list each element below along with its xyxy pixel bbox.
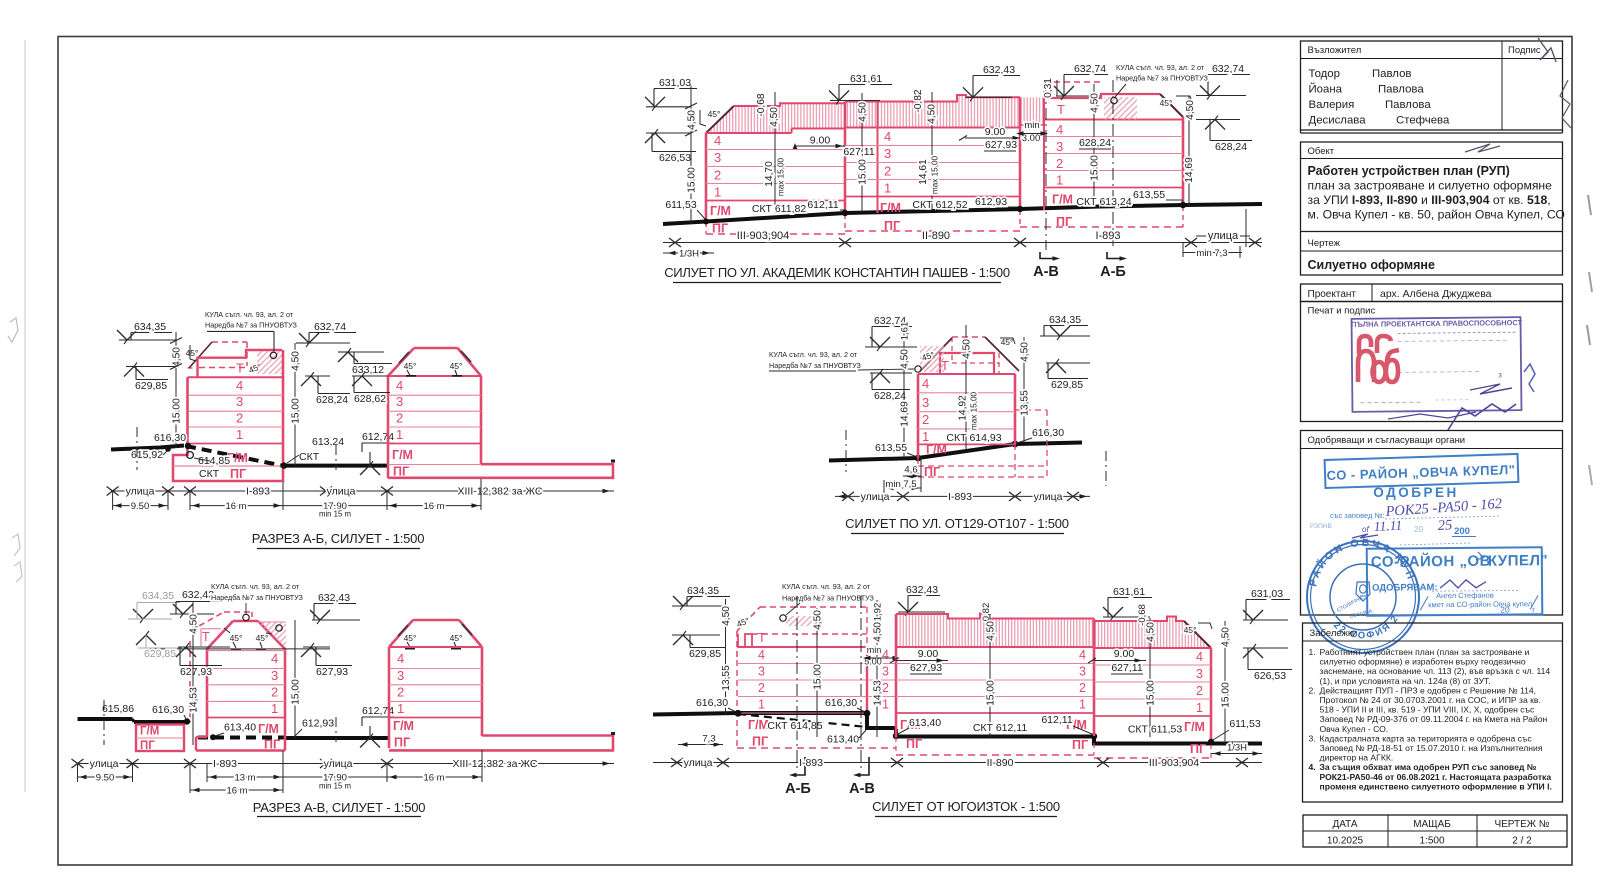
svg-text:4,50: 4,50 <box>687 110 698 130</box>
svg-text:45°: 45° <box>256 633 269 643</box>
svg-text:min 15 m: min 15 m <box>319 782 351 791</box>
svg-text:Работен устройствен план (РУП): Работен устройствен план (РУП) <box>1308 164 1510 178</box>
svg-text:СИЛУЕТ ПО УЛ. ОТ129-ОТ107 - 1:: СИЛУЕТ ПО УЛ. ОТ129-ОТ107 - 1:500 <box>845 516 1069 531</box>
svg-text:Т: Т <box>1057 102 1065 117</box>
svg-text:3.: 3. <box>1309 733 1316 743</box>
svg-text:Ангел Стефанов: Ангел Стефанов <box>1436 591 1494 601</box>
svg-text:заснемане, на основание чл. 11: заснемане, на основание чл. 113 (2), във… <box>1320 666 1551 676</box>
svg-text:3: 3 <box>271 668 278 683</box>
svg-text:СКТ: СКТ <box>299 451 320 463</box>
svg-text:улица: улица <box>324 758 353 770</box>
svg-text:м. Овча Купел - кв. 50, район: м. Овча Купел - кв. 50, район Овча Купел… <box>1308 208 1565 222</box>
svg-text:613,55: 613,55 <box>875 442 907 454</box>
svg-text:ПГ: ПГ <box>884 219 900 233</box>
svg-text:45°: 45° <box>450 633 463 643</box>
svg-text:III-903,904: III-903,904 <box>1149 757 1199 769</box>
svg-text:2: 2 <box>396 411 403 426</box>
svg-text:ПГ: ПГ <box>393 465 409 479</box>
svg-text:628,24: 628,24 <box>1215 141 1247 153</box>
svg-text:14,69: 14,69 <box>900 401 911 427</box>
svg-text:Работният устройствен план (пл: Работният устройствен план (план за заст… <box>1320 647 1530 657</box>
svg-text:Г/М: Г/М <box>258 722 279 736</box>
svg-text:XIII-12,382 за ЖС: XIII-12,382 за ЖС <box>457 486 542 498</box>
svg-text:518 - УПИ II и III, кв. 519 -: 518 - УПИ II и III, кв. 519 - УПИ VIII, … <box>1320 705 1535 715</box>
svg-text:max 15,00: max 15,00 <box>931 155 940 194</box>
svg-text:1/3Н: 1/3Н <box>679 249 699 260</box>
svg-text:Протокол № 24 от 30.0703.2001: Протокол № 24 от 30.0703.2001 г. на СОС,… <box>1320 695 1541 705</box>
svg-text:силуетно оформяне) е изработен: силуетно оформяне) е изработен върху гео… <box>1320 657 1526 667</box>
svg-text:1/3Н: 1/3Н <box>1227 743 1247 754</box>
svg-text:4,50: 4,50 <box>927 104 938 124</box>
svg-text:Подпис: Подпис <box>1508 45 1541 56</box>
svg-text:627,93: 627,93 <box>180 666 212 678</box>
svg-text:Т: Т <box>236 361 244 376</box>
svg-text:1: 1 <box>1056 173 1063 188</box>
svg-text:45°: 45° <box>708 109 721 119</box>
svg-text:4: 4 <box>758 648 765 662</box>
svg-text:16 m: 16 m <box>226 786 247 797</box>
svg-text:3: 3 <box>882 665 889 679</box>
svg-text:14,70: 14,70 <box>764 161 775 187</box>
svg-text:СИЛУЕТ ОТ ЮГОИЗТОК - 1:500: СИЛУЕТ ОТ ЮГОИЗТОК - 1:500 <box>872 799 1060 814</box>
svg-text:Г/М: Г/М <box>393 719 414 733</box>
svg-text:1: 1 <box>397 701 404 716</box>
svg-text:4,50: 4,50 <box>291 351 302 371</box>
svg-text:ПГ: ПГ <box>230 467 246 481</box>
svg-text:I-893: I-893 <box>1095 230 1120 242</box>
svg-text:Кадастралната карта за територ: Кадастралната карта за територията е одо… <box>1320 733 1533 743</box>
svg-text:13,55: 13,55 <box>1020 390 1031 416</box>
svg-text:627,93: 627,93 <box>985 139 1017 151</box>
svg-text:улица: улица <box>126 486 155 498</box>
svg-text:616,30: 616,30 <box>1032 427 1064 439</box>
svg-text:4: 4 <box>714 133 721 148</box>
svg-text:9.50: 9.50 <box>96 773 115 784</box>
svg-text:ПГ: ПГ <box>1190 742 1206 756</box>
svg-text:улица: улица <box>327 486 356 498</box>
svg-text:I-893: I-893 <box>948 491 972 503</box>
svg-text:9.00: 9.00 <box>918 648 939 660</box>
svg-text:-0,68: -0,68 <box>756 93 767 117</box>
svg-text:15.00: 15.00 <box>1221 682 1232 708</box>
svg-text:I-893: I-893 <box>246 486 270 498</box>
svg-text:Г/М: Г/М <box>140 726 159 738</box>
svg-text:ЧЕРТЕЖ №: ЧЕРТЕЖ № <box>1494 819 1549 830</box>
svg-text:628,24: 628,24 <box>316 394 348 406</box>
svg-text:улица: улица <box>1034 491 1063 503</box>
svg-text:628,62: 628,62 <box>354 393 386 405</box>
svg-text:Т: Т <box>758 631 766 645</box>
svg-text:613,40: 613,40 <box>909 717 941 729</box>
svg-text:4,6: 4,6 <box>904 465 917 476</box>
svg-text:Печат и подпис: Печат и подпис <box>1308 306 1376 317</box>
svg-text:СКТ 614,85: СКТ 614,85 <box>767 720 822 732</box>
svg-text:Павлов: Павлов <box>1372 68 1411 80</box>
svg-text:3: 3 <box>758 665 765 679</box>
svg-text:Наредба №7 за ПНУОВТУЗ: Наредба №7 за ПНУОВТУЗ <box>1116 74 1208 83</box>
svg-text:min 7,3: min 7,3 <box>1196 248 1227 259</box>
svg-text:-0,82: -0,82 <box>913 89 924 113</box>
svg-text:1,61: 1,61 <box>900 322 911 341</box>
svg-text:max 15,00: max 15,00 <box>970 391 979 430</box>
svg-text:Наредба №7 за ПНУОВТУЗ: Наредба №7 за ПНУОВТУЗ <box>205 321 297 330</box>
svg-text:626,53: 626,53 <box>1254 670 1286 682</box>
svg-text:15,00: 15,00 <box>291 398 302 424</box>
svg-text:Павлова: Павлова <box>1385 99 1431 111</box>
svg-text:ПГ: ПГ <box>712 222 728 236</box>
svg-text:2.: 2. <box>1309 685 1316 695</box>
svg-text:ПГ: ПГ <box>140 740 155 752</box>
svg-text:10.2025: 10.2025 <box>1327 836 1364 847</box>
svg-text:634,35: 634,35 <box>134 321 166 333</box>
svg-text:3: 3 <box>236 394 243 409</box>
svg-text:улица: улица <box>1208 230 1239 242</box>
svg-text:626,53: 626,53 <box>659 152 691 164</box>
svg-text:улица: улица <box>684 757 713 769</box>
svg-text:РАЗРЕЗ А-В, СИЛУЕТ - 1:500: РАЗРЕЗ А-В, СИЛУЕТ - 1:500 <box>253 800 426 815</box>
svg-text:14,92: 14,92 <box>958 395 969 421</box>
svg-text:9.50: 9.50 <box>131 501 150 512</box>
svg-text:Г/М: Г/М <box>227 451 248 465</box>
svg-text:612,11: 612,11 <box>807 199 838 211</box>
svg-text:min 7,5: min 7,5 <box>885 479 916 490</box>
svg-text:2: 2 <box>271 685 278 700</box>
svg-text:А-Б: А-Б <box>785 781 811 797</box>
svg-text:631,03: 631,03 <box>659 77 691 89</box>
svg-text:2: 2 <box>1056 156 1063 171</box>
svg-text:25: 25 <box>1437 517 1452 534</box>
svg-text:I-893: I-893 <box>799 757 823 769</box>
svg-text:613,40: 613,40 <box>224 722 256 734</box>
svg-text:А-В: А-В <box>1033 264 1059 280</box>
svg-text:2: 2 <box>714 168 721 183</box>
svg-text:4,50: 4,50 <box>189 614 200 634</box>
svg-text:612,93: 612,93 <box>975 196 1007 208</box>
svg-text:МАЩАБ: МАЩАБ <box>1413 819 1451 830</box>
svg-text:9.00: 9.00 <box>985 126 1006 138</box>
svg-text:16 m: 16 m <box>423 501 444 512</box>
svg-text:4,50: 4,50 <box>962 339 973 359</box>
svg-text:45°: 45° <box>186 348 199 358</box>
svg-text:612,93: 612,93 <box>302 718 334 730</box>
svg-text:4,50: 4,50 <box>1090 93 1101 113</box>
svg-text:Стефчева: Стефчева <box>1396 115 1450 127</box>
svg-text:15.00: 15.00 <box>858 159 869 185</box>
svg-text:4: 4 <box>397 651 404 666</box>
svg-text:1: 1 <box>884 181 891 196</box>
svg-text:14,53: 14,53 <box>189 687 200 713</box>
svg-text:634,35: 634,35 <box>1049 314 1081 326</box>
svg-text:634,35: 634,35 <box>687 585 719 597</box>
svg-text:627,93: 627,93 <box>910 662 942 674</box>
svg-text:Г/М: Г/М <box>392 448 413 462</box>
svg-text:ПГ: ПГ <box>264 738 280 752</box>
svg-text:кмет на СО-район Овча купел: кмет на СО-район Овча купел <box>1428 599 1532 609</box>
svg-text:632,43: 632,43 <box>906 584 938 596</box>
svg-text:Павлова: Павлова <box>1378 84 1424 96</box>
svg-text:45°: 45° <box>450 361 463 371</box>
svg-text:з: з <box>1498 370 1502 379</box>
svg-text:616,30: 616,30 <box>696 697 728 709</box>
svg-text:15.00: 15.00 <box>172 398 183 424</box>
svg-text:45°: 45° <box>404 633 417 643</box>
svg-text:1.: 1. <box>1309 647 1316 657</box>
svg-text:план за застрояване и силуетно: план за застрояване и силуетно оформяне <box>1308 179 1553 193</box>
svg-text:СКТ 612,11: СКТ 612,11 <box>973 722 1028 734</box>
svg-text:max 15,00: max 15,00 <box>777 157 786 196</box>
svg-text:200: 200 <box>1454 526 1470 537</box>
svg-text:16 m: 16 m <box>225 501 246 512</box>
svg-text:1: 1 <box>1196 701 1203 715</box>
svg-text:ПГ: ПГ <box>906 737 922 751</box>
svg-text:628,24: 628,24 <box>874 390 906 402</box>
svg-text:4,50: 4,50 <box>986 621 997 641</box>
svg-text:Действащият ПУП - ПРЗ е одобре: Действащият ПУП - ПРЗ е одобрен с Решени… <box>1320 685 1537 695</box>
svg-text:Възложител: Възложител <box>1308 45 1362 56</box>
svg-text:613,40: 613,40 <box>827 734 859 746</box>
svg-text:4: 4 <box>271 651 278 666</box>
svg-text:(1), и при условията на чл. 12: (1), и при условията на чл. 124а (8) от … <box>1320 676 1491 686</box>
svg-text:1: 1 <box>714 185 721 200</box>
svg-text:613,24: 613,24 <box>312 436 344 448</box>
svg-text:632,43: 632,43 <box>182 589 214 601</box>
svg-text:СКТ 611,53: СКТ 611,53 <box>1128 724 1183 736</box>
svg-text:14,69: 14,69 <box>1184 157 1195 183</box>
svg-text:634,35: 634,35 <box>142 590 174 602</box>
svg-text:3: 3 <box>1196 667 1203 681</box>
svg-text:13,55: 13,55 <box>721 665 732 691</box>
svg-text:16 m: 16 m <box>423 773 444 784</box>
svg-text:629,85: 629,85 <box>689 648 721 660</box>
svg-text:13 m: 13 m <box>234 773 255 784</box>
svg-text:Заповед № РД-09-376 от 09.11.2: Заповед № РД-09-376 от 09.11.2004 г. на … <box>1320 714 1548 724</box>
svg-text:15.00: 15.00 <box>1090 155 1101 181</box>
svg-text:3: 3 <box>396 394 403 409</box>
svg-text:Наредба №7 за ПНУОВТУЗ: Наредба №7 за ПНУОВТУЗ <box>769 361 861 370</box>
svg-text:СКТ 614,93: СКТ 614,93 <box>946 432 1001 444</box>
svg-text:611,53: 611,53 <box>665 199 696 211</box>
svg-text:628,24: 628,24 <box>1079 137 1111 149</box>
svg-text:632,43: 632,43 <box>983 64 1015 76</box>
svg-text:612,74: 612,74 <box>362 431 394 443</box>
svg-text:4: 4 <box>922 376 929 391</box>
svg-text:629,85: 629,85 <box>135 380 167 392</box>
svg-text:9.00: 9.00 <box>810 135 831 147</box>
svg-text:Овча Купел - СО.: Овча Купел - СО. <box>1320 724 1389 734</box>
svg-text:631,61: 631,61 <box>850 73 882 85</box>
svg-text:632,74: 632,74 <box>314 321 346 333</box>
svg-text:4,50: 4,50 <box>1020 342 1031 362</box>
svg-text:КУЛА съгл. чл. 93, ал. 2 от: КУЛА съгл. чл. 93, ал. 2 от <box>205 310 294 319</box>
svg-text:min 15 m: min 15 m <box>319 510 351 519</box>
svg-text:Йоана: Йоана <box>1309 83 1343 96</box>
svg-text:3: 3 <box>1079 665 1086 679</box>
svg-text:КУПЕЛ": КУПЕЛ" <box>1488 552 1548 570</box>
svg-text:Заповед № РД-18-51 от 15.07.20: Заповед № РД-18-51 от 15.07.2010 г. на И… <box>1320 743 1543 753</box>
svg-text:РЗПНВ: РЗПНВ <box>1310 523 1332 530</box>
svg-text:615,86: 615,86 <box>102 703 134 715</box>
svg-text:627,11: 627,11 <box>1111 662 1142 674</box>
svg-text:2: 2 <box>884 164 891 179</box>
svg-text:615,92: 615,92 <box>131 449 163 461</box>
svg-text:КУЛА съгл. чл. 93, ал. 2 от: КУЛА съгл. чл. 93, ал. 2 от <box>782 582 871 591</box>
svg-text:11.11: 11.11 <box>1373 518 1402 534</box>
svg-text:4: 4 <box>396 378 403 393</box>
svg-text:4,50: 4,50 <box>873 622 884 642</box>
svg-text:За същия обхват има одобрен РУ: За същия обхват има одобрен РУП със запо… <box>1320 762 1537 772</box>
svg-text:2: 2 <box>236 411 243 426</box>
svg-text:2: 2 <box>758 681 765 695</box>
svg-text:за УПИ I-893, II-890 и III-903: за УПИ I-893, II-890 и III-903,904 от кв… <box>1308 193 1551 207</box>
svg-text:РОК21-РА50-46 от 06.08.2021 г.: РОК21-РА50-46 от 06.08.2021 г. Настоящат… <box>1320 772 1552 782</box>
svg-text:3.00: 3.00 <box>1022 133 1041 144</box>
svg-text:631,03: 631,03 <box>1251 588 1283 600</box>
svg-text:4,50: 4,50 <box>1146 622 1157 642</box>
svg-text:min: min <box>867 645 882 655</box>
svg-text:КУЛА съгл. чл. 93, ал. 2 от: КУЛА съгл. чл. 93, ал. 2 от <box>1116 63 1205 72</box>
svg-text:Обект: Обект <box>1308 146 1335 157</box>
svg-text:611,53: 611,53 <box>1229 718 1260 730</box>
svg-text:4,50: 4,50 <box>858 102 869 122</box>
svg-text:616,30: 616,30 <box>152 704 184 716</box>
svg-text:45°: 45° <box>1184 625 1197 635</box>
svg-text:3: 3 <box>714 150 721 165</box>
svg-text:г: г <box>1532 604 1535 614</box>
svg-text:9.00: 9.00 <box>1114 648 1135 660</box>
svg-text:ОДОБРЕН: ОДОБРЕН <box>1373 485 1458 500</box>
svg-text:ПГ: ПГ <box>752 735 768 749</box>
svg-text:Тодор: Тодор <box>1309 68 1340 80</box>
svg-text:629,85: 629,85 <box>144 648 176 660</box>
svg-text:Г/М: Г/М <box>926 443 947 457</box>
svg-text:директор на АГКК.: директор на АГКК. <box>1320 753 1394 763</box>
svg-text:3: 3 <box>884 146 891 161</box>
svg-text:ПГ: ПГ <box>394 736 410 750</box>
svg-text:1,92: 1,92 <box>873 603 884 622</box>
svg-text:15,00: 15,00 <box>1146 680 1157 706</box>
svg-text:Одобряващи и съгласуващи орган: Одобряващи и съгласуващи органи <box>1308 435 1466 446</box>
svg-text:II-890: II-890 <box>987 757 1014 769</box>
svg-text:4,50: 4,50 <box>1221 627 1232 647</box>
svg-text:4: 4 <box>882 648 889 662</box>
svg-text:2: 2 <box>922 412 929 427</box>
svg-text:2: 2 <box>1079 681 1086 695</box>
svg-text:СКТ 612,52: СКТ 612,52 <box>912 199 967 211</box>
svg-text:15.00: 15.00 <box>687 167 698 193</box>
svg-text:арх. Албена Джуджева: арх. Албена Джуджева <box>1380 288 1492 300</box>
svg-text:2: 2 <box>1196 684 1203 698</box>
svg-text:7,3: 7,3 <box>702 734 715 745</box>
svg-text:А-В: А-В <box>849 781 875 797</box>
svg-text:СКТ: СКТ <box>199 468 220 480</box>
svg-text:616,30: 616,30 <box>825 697 857 709</box>
svg-text:1: 1 <box>396 427 403 442</box>
svg-text:614,85: 614,85 <box>198 455 230 467</box>
svg-text:612,11: 612,11 <box>1041 714 1072 726</box>
svg-text:Десислава: Десислава <box>1309 115 1367 127</box>
svg-text:КУЛА съгл. чл. 93, ал. 2 от: КУЛА съгл. чл. 93, ал. 2 от <box>769 350 858 359</box>
svg-text:Чертеж: Чертеж <box>1308 238 1341 249</box>
svg-text:СКТ 613,24: СКТ 613,24 <box>1076 196 1131 208</box>
svg-text:Т: Т <box>202 630 210 644</box>
svg-text:631,61: 631,61 <box>1113 586 1145 598</box>
svg-text:633,12: 633,12 <box>352 364 384 376</box>
svg-text:3: 3 <box>1056 139 1063 154</box>
svg-text:III-903,904: III-903,904 <box>737 230 790 242</box>
svg-text:15,00: 15,00 <box>986 680 997 706</box>
svg-text:632,74: 632,74 <box>1212 63 1244 75</box>
svg-text:4: 4 <box>236 378 243 393</box>
svg-text:629,85: 629,85 <box>1051 379 1083 391</box>
svg-text:627,93: 627,93 <box>316 666 348 678</box>
svg-text:3: 3 <box>397 668 404 683</box>
svg-text:of: of <box>1362 525 1369 534</box>
svg-text:ПЪЛНА ПРОЕКТАНТСКА ПРАВОСПОСОБ: ПЪЛНА ПРОЕКТАНТСКА ПРАВОСПОСОБНОСТ <box>1351 318 1522 329</box>
svg-text:0,31: 0,31 <box>1043 78 1054 98</box>
svg-text:616,30: 616,30 <box>154 432 186 444</box>
svg-text:2 / 2: 2 / 2 <box>1512 836 1532 847</box>
svg-text:Наредба №7 за ПНУОВТУЗ: Наредба №7 за ПНУОВТУЗ <box>782 594 874 603</box>
svg-text:4,50: 4,50 <box>721 606 732 626</box>
svg-text:улица: улица <box>861 491 890 503</box>
svg-text:4: 4 <box>1079 648 1086 662</box>
svg-text:Г/М: Г/М <box>710 204 731 218</box>
svg-text:14,53: 14,53 <box>873 680 884 706</box>
svg-text:Силуетно оформяне: Силуетно оформяне <box>1308 258 1435 272</box>
svg-text:4: 4 <box>1056 122 1063 137</box>
svg-text:20: 20 <box>1500 605 1510 615</box>
svg-text:4.: 4. <box>1309 762 1316 772</box>
svg-text:XIII-12,382 за ЖС: XIII-12,382 за ЖС <box>452 758 537 770</box>
svg-text:Г/М: Г/М <box>1184 720 1205 734</box>
svg-text:632,74: 632,74 <box>1074 63 1106 75</box>
svg-text:1: 1 <box>758 698 765 712</box>
svg-text:2: 2 <box>397 685 404 700</box>
svg-text:Г/М: Г/М <box>748 718 769 732</box>
svg-text:613,55: 613,55 <box>1133 189 1165 201</box>
svg-text:4: 4 <box>1196 650 1203 664</box>
svg-text:Г/М: Г/М <box>880 201 901 215</box>
svg-text:4,50: 4,50 <box>1185 100 1196 120</box>
svg-text:1:500: 1:500 <box>1419 836 1444 847</box>
svg-text:20: 20 <box>1414 525 1423 534</box>
svg-text:СИЛУЕТ ПО УЛ. АКАДЕМИК КОНСТАН: СИЛУЕТ ПО УЛ. АКАДЕМИК КОНСТАНТИН ПАШЕВ … <box>664 265 1010 280</box>
svg-text:min: min <box>1024 120 1039 131</box>
svg-text:4,50: 4,50 <box>769 107 780 127</box>
svg-text:ДАТА: ДАТА <box>1332 819 1357 830</box>
svg-text:15.00: 15.00 <box>813 664 824 690</box>
svg-text:II-890: II-890 <box>922 230 950 242</box>
svg-text:Наредба №7 за ПНУОВТУЗ: Наредба №7 за ПНУОВТУЗ <box>211 593 303 602</box>
svg-text:4: 4 <box>884 129 891 144</box>
svg-text:ПГ: ПГ <box>1056 215 1072 229</box>
svg-text:улица: улица <box>90 758 119 770</box>
svg-text:Забележки: Забележки <box>1310 628 1358 639</box>
svg-text:Проектант: Проектант <box>1308 289 1357 300</box>
svg-text:45°: 45° <box>230 633 243 643</box>
svg-text:СКТ 611,82: СКТ 611,82 <box>752 203 807 215</box>
svg-text:15,00: 15,00 <box>291 679 302 705</box>
svg-text:4,50: 4,50 <box>813 610 824 630</box>
svg-text:1: 1 <box>271 701 278 716</box>
svg-text:КУЛА съгл. чл. 93, ал. 2 от: КУЛА съгл. чл. 93, ал. 2 от <box>211 582 300 591</box>
svg-text:4,50: 4,50 <box>900 349 911 369</box>
svg-text:45°: 45° <box>1160 98 1173 108</box>
svg-text:А-Б: А-Б <box>1100 264 1126 280</box>
svg-text:ПГ: ПГ <box>1072 738 1088 752</box>
svg-text:ОДОБРЯВАМ:: ОДОБРЯВАМ: <box>1372 582 1438 594</box>
svg-text:14,61: 14,61 <box>918 159 929 185</box>
